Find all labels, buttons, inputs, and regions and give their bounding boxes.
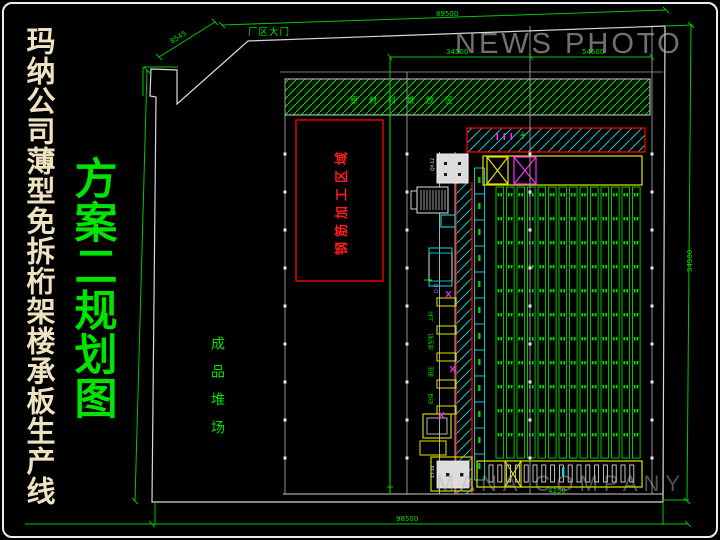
rack-mark [550, 265, 552, 268]
rack-mark [592, 337, 594, 340]
rack-mark [518, 241, 520, 244]
rack-mark [592, 265, 594, 268]
rack-mark [574, 385, 576, 388]
rack-mark [532, 361, 534, 364]
cyan-rack-mark [478, 333, 480, 339]
rack-mark [616, 193, 618, 196]
rack-column [612, 187, 620, 458]
rack-mark [613, 193, 615, 196]
rack-mark [595, 433, 597, 436]
cad-plan-canvas: QY-12 4T-14 [0, 0, 720, 540]
rack-mark [626, 217, 628, 220]
rack-mark [550, 313, 552, 316]
rack-mark [592, 409, 594, 412]
rack-mark [511, 409, 513, 412]
rack-mark [623, 265, 625, 268]
page-title: 玛纳公司薄型免拆桁架楼承板生产线 [24, 26, 54, 506]
grid-tick [284, 153, 287, 156]
cyan-rack-mark [478, 255, 480, 261]
loading-strip-top [483, 156, 642, 185]
line-equipment-label: 码垛 [427, 392, 435, 404]
rack-mark [634, 361, 636, 364]
dimension-bottom: 98500 [396, 515, 418, 523]
rack-mark [605, 409, 607, 412]
rack-mark [592, 193, 594, 196]
rack-mark [571, 337, 573, 340]
dimension-gate: 8545 [169, 29, 188, 45]
rack-mark [553, 385, 555, 388]
rack-mark [542, 313, 544, 316]
rack-mark [508, 265, 510, 268]
rack-mark [581, 361, 583, 364]
rack-mark [605, 385, 607, 388]
rack-mark [539, 193, 541, 196]
section-label: D-D [434, 283, 440, 293]
rack-mark [616, 289, 618, 292]
rack-mark [539, 217, 541, 220]
rack-mark [616, 433, 618, 436]
rack-mark [574, 433, 576, 436]
rack-mark [532, 193, 534, 196]
rack-mark [521, 409, 523, 412]
rack-mark [511, 337, 513, 340]
x-box-yellow [487, 157, 508, 184]
rack-mark [574, 337, 576, 340]
gate-label: 厂区大门 [248, 26, 290, 38]
rack-mark [634, 337, 636, 340]
rack-mark [602, 289, 604, 292]
cyan-rack-mark [478, 411, 480, 417]
rack-mark [553, 241, 555, 244]
rack-mark [613, 337, 615, 340]
rack-mark [497, 289, 499, 292]
rack-mark [553, 337, 555, 340]
rack-mark [508, 409, 510, 412]
rack-mark [497, 241, 499, 244]
rack-mark [584, 217, 586, 220]
rack-mark [521, 193, 523, 196]
rack-mark [581, 217, 583, 220]
rack-mark [511, 193, 513, 196]
rack-mark [532, 337, 534, 340]
rack-mark [521, 361, 523, 364]
rack-mark [550, 241, 552, 244]
rack-mark [560, 409, 562, 412]
dimension-top: 89500 [436, 10, 458, 18]
cyan-rack-column [475, 168, 485, 480]
rack-mark [602, 409, 604, 412]
rack-column [538, 187, 546, 458]
rack-mark [508, 289, 510, 292]
rack-mark [584, 289, 586, 292]
rack-mark [563, 433, 565, 436]
grid-tick [529, 381, 532, 384]
rack-mark [563, 241, 565, 244]
rack-mark [584, 361, 586, 364]
grid-tick [284, 343, 287, 346]
aisle-hatch [457, 182, 473, 494]
rack-mark [613, 361, 615, 364]
rack-mark [563, 361, 565, 364]
rack-mark [626, 409, 628, 412]
rack-mark [605, 193, 607, 196]
grid-tick [529, 343, 532, 346]
rack-mark [521, 385, 523, 388]
rack-mark [500, 193, 502, 196]
rack-column [633, 187, 641, 458]
rack-mark [539, 313, 541, 316]
rack-mark [584, 265, 586, 268]
rack-mark [542, 193, 544, 196]
machine-coder [423, 414, 451, 438]
rack-mark [613, 265, 615, 268]
yard-label: 成品堆场 [207, 336, 227, 448]
rack-mark [500, 361, 502, 364]
rack-mark [508, 217, 510, 220]
rack-mark [550, 433, 552, 436]
rack-mark [634, 265, 636, 268]
rack-mark [634, 217, 636, 220]
cyan-rack-mark [478, 203, 480, 209]
rack-mark [508, 241, 510, 244]
grid-tick [284, 419, 287, 422]
rack-mark [613, 217, 615, 220]
rack-mark [605, 241, 607, 244]
grid-tick [406, 191, 409, 194]
rack-mark [521, 313, 523, 316]
rack-mark [500, 409, 502, 412]
rack-column [570, 187, 578, 458]
rack-mark [592, 217, 594, 220]
rack-mark [616, 217, 618, 220]
rack-mark [497, 337, 499, 340]
machine-cyan-box [441, 215, 455, 227]
rack-mark [550, 385, 552, 388]
grid-tick [406, 267, 409, 270]
rack-mark [595, 337, 597, 340]
rack-mark [623, 313, 625, 316]
rack-mark [626, 289, 628, 292]
rack-mark [532, 265, 534, 268]
rack-mark [521, 289, 523, 292]
machine-stacker [429, 248, 452, 286]
rack-mark [613, 385, 615, 388]
rack-mark [634, 385, 636, 388]
rack-mark [592, 289, 594, 292]
rack-mark [637, 313, 639, 316]
cyan-rack-mark [478, 229, 480, 235]
rack-mark [560, 289, 562, 292]
rack-mark [563, 217, 565, 220]
grid-tick [284, 457, 287, 460]
rack-mark [550, 409, 552, 412]
rack-mark [500, 433, 502, 436]
rack-mark [542, 385, 544, 388]
grid-tick [406, 381, 409, 384]
rack-mark [605, 289, 607, 292]
rack-mark [563, 313, 565, 316]
rack-mark [532, 217, 534, 220]
rack-mark [595, 241, 597, 244]
rack-mark [592, 433, 594, 436]
rack-mark [571, 433, 573, 436]
rack-mark [500, 217, 502, 220]
rack-mark [532, 409, 534, 412]
rack-mark [500, 289, 502, 292]
grid-tick [284, 381, 287, 384]
rack-mark [553, 433, 555, 436]
rack-mark [574, 193, 576, 196]
rack-mark [592, 361, 594, 364]
rack-mark [560, 217, 562, 220]
rack-mark [626, 313, 628, 316]
rack-mark [584, 433, 586, 436]
rack-mark [539, 433, 541, 436]
rack-mark [560, 433, 562, 436]
rack-column [580, 187, 588, 458]
rack-mark [616, 385, 618, 388]
rack-mark [602, 313, 604, 316]
material-storage-band [285, 79, 650, 115]
cyan-rack-mark [478, 281, 480, 287]
rack-mark [592, 385, 594, 388]
rack-mark [500, 265, 502, 268]
grid-tick [529, 153, 532, 156]
rack-mark [511, 289, 513, 292]
rack-mark [595, 385, 597, 388]
rack-column [622, 187, 630, 458]
rack-mark [637, 385, 639, 388]
rack-mark [550, 289, 552, 292]
rack-mark [616, 265, 618, 268]
rack-mark [592, 313, 594, 316]
rack-mark [539, 385, 541, 388]
grid-tick [284, 305, 287, 308]
rack-mark [574, 241, 576, 244]
rack-mark [553, 217, 555, 220]
rack-mark [571, 385, 573, 388]
grid-tick [651, 267, 654, 270]
rack-mark [571, 217, 573, 220]
rack-mark [623, 193, 625, 196]
rack-mark [613, 433, 615, 436]
rack-mark [532, 313, 534, 316]
rack-mark [571, 409, 573, 412]
rack-mark [605, 217, 607, 220]
rack-mark [637, 409, 639, 412]
rack-mark [563, 289, 565, 292]
rack-mark [542, 241, 544, 244]
rack-mark [553, 265, 555, 268]
rack-column [601, 187, 609, 458]
rack-mark [602, 265, 604, 268]
rack-mark [584, 313, 586, 316]
rack-mark [574, 409, 576, 412]
rack-mark [563, 409, 565, 412]
rack-mark [571, 289, 573, 292]
rack-mark [634, 289, 636, 292]
rack-mark [595, 361, 597, 364]
grid-tick [406, 305, 409, 308]
rack-mark [637, 433, 639, 436]
rack-mark [602, 337, 604, 340]
rack-column [528, 187, 536, 458]
rack-mark [497, 385, 499, 388]
x-box-magenta [514, 157, 536, 184]
rack-mark [581, 265, 583, 268]
rack-mark [605, 337, 607, 340]
cyan-rack-mark [478, 385, 480, 391]
rack-mark [602, 217, 604, 220]
cyan-rack-mark [478, 437, 480, 443]
rack-mark [497, 193, 499, 196]
watermark-mana-company: MANA COMPANY [436, 471, 686, 497]
rack-mark [626, 337, 628, 340]
rack-mark [616, 313, 618, 316]
rack-mark [560, 241, 562, 244]
rack-mark [532, 433, 534, 436]
rack-mark [511, 265, 513, 268]
rack-column [507, 187, 515, 458]
rack-mark [595, 217, 597, 220]
rack-mark [553, 313, 555, 316]
rack-mark [511, 313, 513, 316]
rack-mark [613, 409, 615, 412]
rack-mark [584, 409, 586, 412]
rack-column [517, 187, 525, 458]
rack-mark [581, 409, 583, 412]
rack-mark [592, 241, 594, 244]
rack-mark [616, 361, 618, 364]
line-equipment-label: 上料 [427, 310, 435, 322]
rack-mark [511, 433, 513, 436]
rack-mark [563, 193, 565, 196]
rack-mark [511, 241, 513, 244]
rack-mark [595, 193, 597, 196]
grid-tick [529, 305, 532, 308]
rack-mark [574, 289, 576, 292]
rack-mark [521, 217, 523, 220]
rack-mark [613, 313, 615, 316]
rack-mark [532, 385, 534, 388]
rack-mark [553, 361, 555, 364]
cyan-rack-mark [478, 307, 480, 313]
grid-tick [406, 419, 409, 422]
rack-mark [563, 265, 565, 268]
rack-mark [626, 361, 628, 364]
rack-mark [497, 433, 499, 436]
rack-mark [532, 241, 534, 244]
rack-mark [542, 409, 544, 412]
grid-tick [651, 343, 654, 346]
rack-mark [518, 433, 520, 436]
rebar-area-label: 钢筋加工区域 [331, 116, 347, 286]
rack-mark [497, 409, 499, 412]
rack-mark [500, 241, 502, 244]
rack-mark [563, 385, 565, 388]
rack-mark [637, 193, 639, 196]
rack-mark [634, 433, 636, 436]
machine-small-box [420, 441, 446, 455]
machine-rollformer [411, 187, 448, 213]
rack-mark [626, 433, 628, 436]
cyan-rack-mark [478, 359, 480, 365]
rack-mark [581, 337, 583, 340]
rack-mark [542, 361, 544, 364]
rack-mark [521, 265, 523, 268]
rack-column [559, 187, 567, 458]
rack-mark [623, 433, 625, 436]
rack-mark [550, 193, 552, 196]
rack-mark [613, 241, 615, 244]
rack-mark [595, 313, 597, 316]
rack-mark [560, 265, 562, 268]
rack-mark [581, 289, 583, 292]
rack-mark [521, 241, 523, 244]
rack-mark [571, 313, 573, 316]
rack-mark [602, 385, 604, 388]
rack-mark [634, 193, 636, 196]
rack-mark [500, 385, 502, 388]
rack-mark [539, 289, 541, 292]
cyan-rack-mark [478, 463, 480, 469]
rack-mark [634, 241, 636, 244]
rack-mark [581, 241, 583, 244]
rack-mark [550, 217, 552, 220]
rack-mark [574, 361, 576, 364]
rack-mark [595, 265, 597, 268]
rack-mark [574, 217, 576, 220]
grid-tick [406, 153, 409, 156]
rack-mark [605, 433, 607, 436]
crane-strip [467, 128, 645, 152]
rack-mark [497, 361, 499, 364]
grid-tick [529, 191, 532, 194]
rack-mark [511, 217, 513, 220]
rack-mark [623, 217, 625, 220]
rack-mark [602, 193, 604, 196]
rack-mark [584, 385, 586, 388]
rack-mark [574, 313, 576, 316]
rack-mark [634, 409, 636, 412]
rack-mark [574, 265, 576, 268]
rack-mark [581, 385, 583, 388]
line-equipment-label: 辊压 [427, 365, 435, 377]
rack-mark [521, 433, 523, 436]
rack-mark [508, 361, 510, 364]
rack-mark [623, 337, 625, 340]
rack-mark [560, 193, 562, 196]
rack-column [591, 187, 599, 458]
material-band-label: 原材料堆放区 [350, 95, 464, 105]
rack-mark [550, 337, 552, 340]
rack-mark [539, 241, 541, 244]
rack-mark [508, 385, 510, 388]
rack-mark [602, 241, 604, 244]
dimension-right: 54500 [686, 250, 694, 272]
rack-mark [550, 361, 552, 364]
rack-mark [539, 265, 541, 268]
rack-mark [637, 289, 639, 292]
rack-mark [542, 289, 544, 292]
rack-mark [553, 409, 555, 412]
rack-mark [542, 337, 544, 340]
rack-mark [626, 193, 628, 196]
rack-mark [518, 337, 520, 340]
rack-mark [623, 385, 625, 388]
machine-tag-m1: QY-12 [430, 158, 436, 171]
rack-mark [518, 193, 520, 196]
